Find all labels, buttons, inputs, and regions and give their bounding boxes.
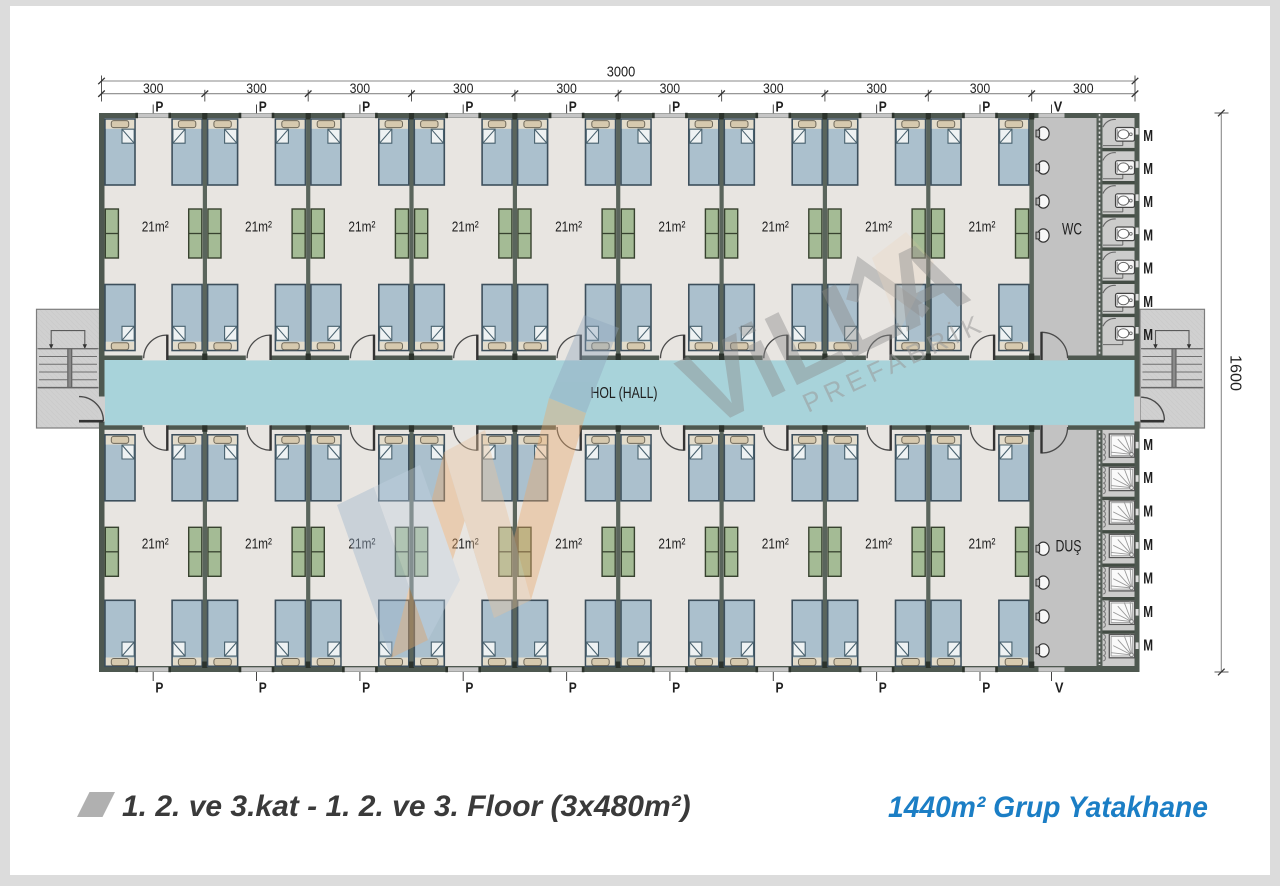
svg-text:P: P [879, 99, 887, 116]
svg-text:21m²: 21m² [865, 536, 892, 553]
svg-text:DUŞ: DUŞ [1056, 537, 1082, 556]
svg-text:P: P [465, 99, 473, 116]
svg-text:300: 300 [970, 81, 991, 97]
svg-text:P: P [155, 99, 163, 116]
svg-text:21m²: 21m² [762, 536, 789, 553]
svg-text:300: 300 [660, 81, 681, 97]
svg-text:M: M [1143, 227, 1153, 244]
svg-text:M: M [1143, 470, 1153, 487]
svg-text:21m²: 21m² [969, 219, 996, 236]
svg-text:V: V [1055, 680, 1064, 697]
svg-text:P: P [879, 680, 887, 697]
svg-text:P: P [672, 99, 680, 116]
svg-text:21m²: 21m² [348, 219, 375, 236]
svg-text:M: M [1143, 604, 1153, 621]
svg-text:P: P [362, 680, 370, 697]
svg-text:M: M [1143, 327, 1153, 344]
svg-text:M: M [1143, 294, 1153, 311]
svg-text:M: M [1143, 504, 1153, 521]
svg-text:M: M [1143, 194, 1153, 211]
svg-text:P: P [155, 680, 163, 697]
svg-text:1. 2. ve 3.kat - 1. 2. ve 3. F: 1. 2. ve 3.kat - 1. 2. ve 3. Floor (3x48… [122, 790, 691, 823]
svg-text:P: P [776, 99, 784, 116]
svg-text:21m²: 21m² [658, 536, 685, 553]
svg-text:21m²: 21m² [658, 219, 685, 236]
svg-text:P: P [982, 680, 990, 697]
svg-text:300: 300 [763, 81, 784, 97]
svg-text:M: M [1143, 437, 1153, 454]
svg-text:300: 300 [143, 81, 164, 97]
svg-text:M: M [1143, 128, 1153, 145]
svg-text:M: M [1143, 637, 1153, 654]
svg-text:M: M [1143, 261, 1153, 278]
svg-text:M: M [1143, 161, 1153, 178]
svg-text:21m²: 21m² [969, 536, 996, 553]
svg-text:21m²: 21m² [555, 536, 582, 553]
svg-text:300: 300 [350, 81, 371, 97]
svg-text:300: 300 [556, 81, 577, 97]
svg-text:M: M [1143, 571, 1153, 588]
svg-text:P: P [569, 99, 577, 116]
svg-text:P: P [362, 99, 370, 116]
svg-text:1600: 1600 [1227, 355, 1244, 391]
svg-text:P: P [776, 680, 784, 697]
svg-text:300: 300 [866, 81, 887, 97]
svg-text:M: M [1143, 537, 1153, 554]
svg-text:WC: WC [1062, 220, 1082, 239]
svg-text:21m²: 21m² [245, 536, 272, 553]
svg-text:P: P [672, 680, 680, 697]
svg-text:P: P [465, 680, 473, 697]
svg-text:V: V [1054, 99, 1063, 116]
svg-text:21m²: 21m² [142, 536, 169, 553]
svg-text:1440m² Grup Yatakhane: 1440m² Grup Yatakhane [888, 791, 1208, 824]
svg-text:P: P [259, 99, 267, 116]
svg-text:300: 300 [246, 81, 267, 97]
svg-text:P: P [569, 680, 577, 697]
svg-text:21m²: 21m² [555, 219, 582, 236]
svg-text:3000: 3000 [607, 63, 636, 80]
svg-text:300: 300 [1073, 81, 1094, 97]
svg-text:P: P [982, 99, 990, 116]
svg-text:300: 300 [453, 81, 474, 97]
svg-text:21m²: 21m² [245, 219, 272, 236]
svg-text:21m²: 21m² [142, 219, 169, 236]
svg-text:HOL (HALL): HOL (HALL) [591, 385, 658, 402]
svg-text:21m²: 21m² [762, 219, 789, 236]
svg-text:21m²: 21m² [452, 219, 479, 236]
svg-text:P: P [259, 680, 267, 697]
